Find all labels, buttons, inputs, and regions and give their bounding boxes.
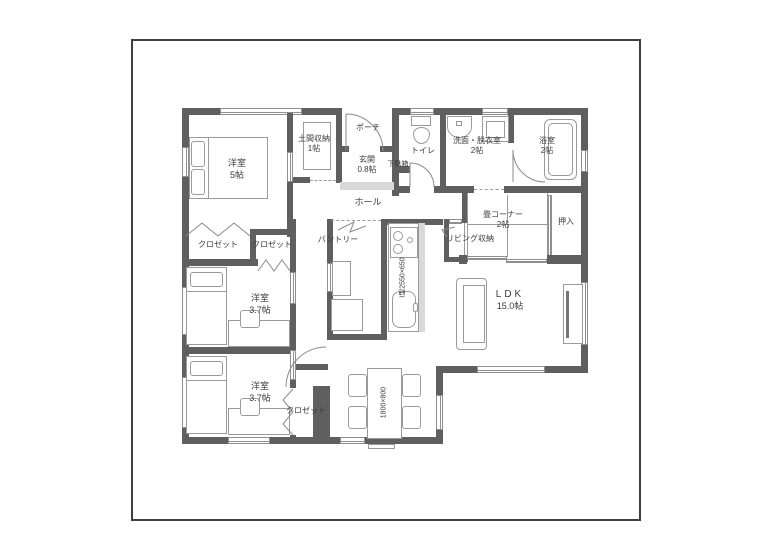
room-label-oshiire: 押入 [551, 217, 581, 227]
room-label-bedroom-main: 洋室5帖 [207, 158, 267, 181]
room-label-washroom: 洗面・脱衣室2帖 [443, 136, 511, 157]
room-label-hall: ホール [350, 197, 386, 209]
closet-main-bifold [186, 223, 250, 236]
room-label-tatami-corner: 畳コーナー2帖 [474, 210, 532, 231]
room-label-porch: ポーチ [350, 123, 386, 133]
room-label-bathroom: 浴室2帖 [528, 136, 566, 157]
corridor-door-arc [286, 347, 326, 387]
dining-table-dimension-label: 1800×800 [379, 363, 388, 443]
room-label-toilet: トイレ [406, 146, 440, 156]
room-label-ldk: LDK15.0帖 [480, 288, 540, 313]
room-label-closet-mid: クロゼット [250, 240, 294, 250]
room-label-bedroom-mid: 洋室3.7帖 [230, 293, 290, 316]
room-label-living-storage: リビング収納 [442, 234, 498, 244]
floor-plan: 洋室5帖 土間収納1帖 ポーチ 玄関0.8帖 下駄箱 ホール トイレ 洗面・脱衣… [0, 0, 768, 557]
room-label-pantry: パントリー [315, 235, 361, 245]
kitchen-dimension-label: I型2550×650 [398, 238, 407, 318]
door-arc-overlay [0, 0, 768, 557]
room-label-doma-storage: 土間収納1帖 [293, 134, 335, 155]
label-shoe-cabinet: 下駄箱 [381, 160, 415, 169]
room-label-bedroom-south: 洋室3.7帖 [230, 381, 290, 404]
pantry-opening-mark [338, 222, 366, 232]
room-label-closet-south: クロゼット [282, 406, 330, 416]
closet-mid-bifold [258, 260, 290, 271]
room-label-closet-main: クロゼット [192, 240, 244, 250]
